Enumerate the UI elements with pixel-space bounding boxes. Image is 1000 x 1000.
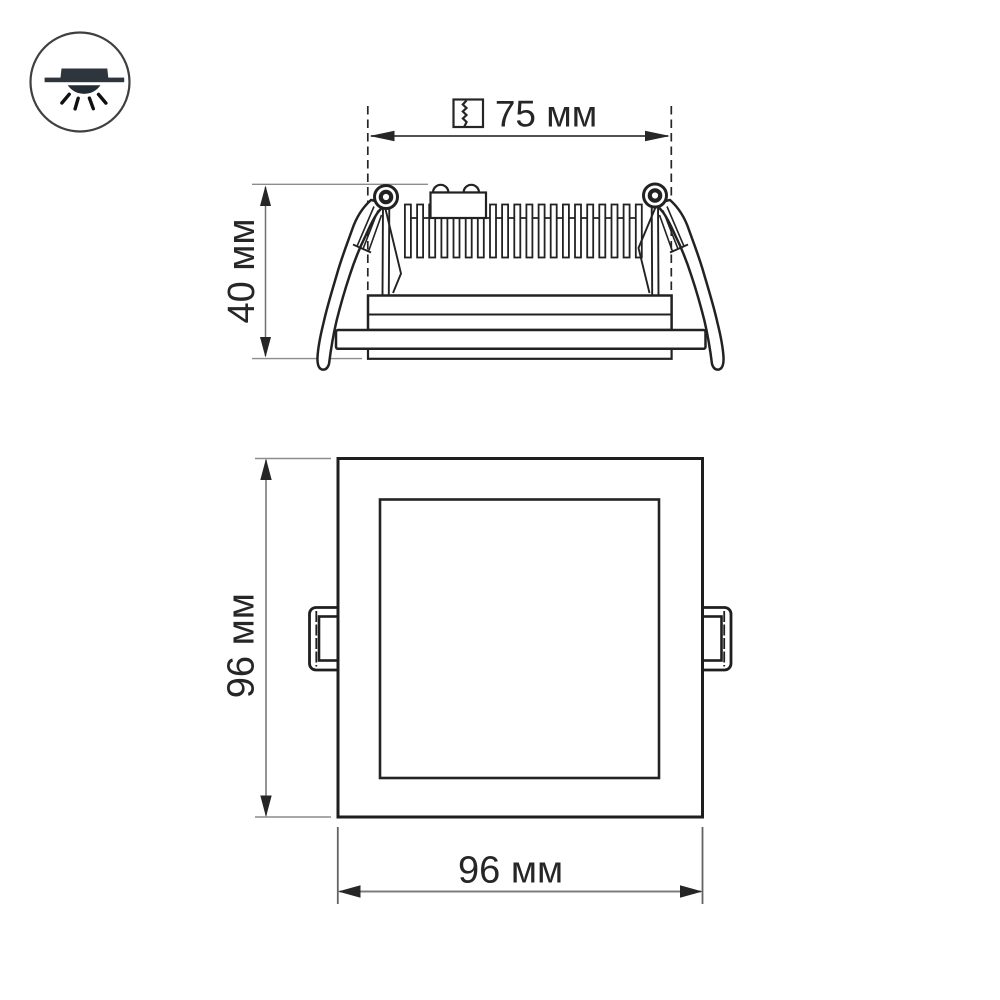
svg-text:96 мм: 96 мм <box>220 593 262 698</box>
svg-text:40 мм: 40 мм <box>221 218 263 323</box>
svg-text:96 мм: 96 мм <box>458 850 563 892</box>
svg-text:75 мм: 75 мм <box>495 94 597 135</box>
